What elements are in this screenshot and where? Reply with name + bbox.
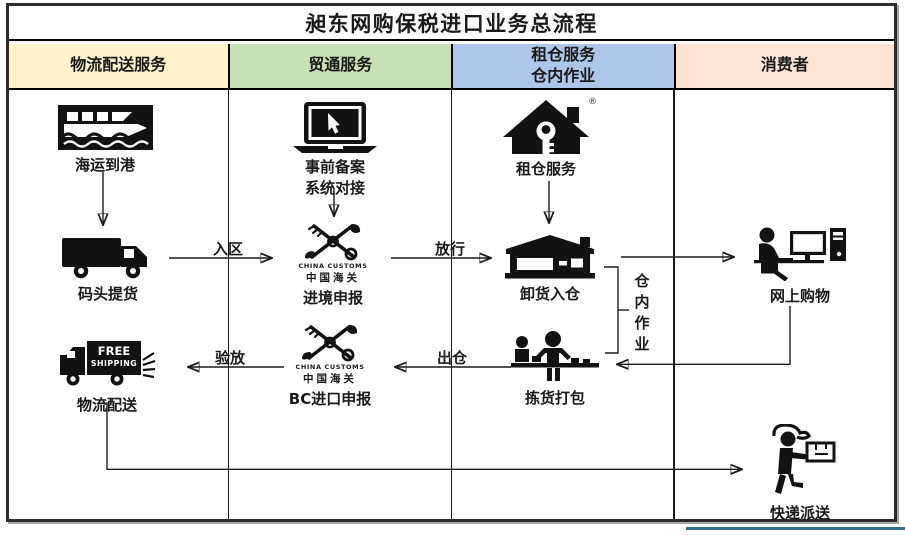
warehouse-ops-note: 仓 内 作 业 (629, 271, 655, 355)
edge-label-out-of-warehouse: 出仓 (420, 347, 484, 368)
edge-label-inspect-release: 验放 (198, 347, 262, 368)
column-header-consumer: 消费者 (674, 44, 895, 91)
node-bc-import-declaration: CHINA CUSTOMS 中国海关 BC进口申报 (263, 322, 397, 409)
node-warehouse-rental: ® 租仓服务 (479, 100, 613, 179)
node-label: 物流配送 (40, 394, 174, 415)
column-header-label: 消费者 (761, 55, 809, 76)
column-divider-3 (673, 90, 675, 519)
column-header-trade: 贸通服务 (228, 44, 452, 91)
warehouse-ops-char: 业 (629, 334, 655, 355)
node-label: 拣货打包 (488, 387, 622, 408)
flowchart-canvas: 昶东网购保税进口业务总流程 物流配送服务 贸通服务 租仓服务 仓内作业 消费者 (0, 0, 905, 535)
node-label: 网上购物 (733, 285, 867, 306)
node-label: 码头提货 (41, 283, 175, 304)
node-label: 卸货入仓 (483, 283, 617, 304)
node-label-line2: 系统对接 (268, 177, 402, 198)
ship-icon (58, 105, 153, 150)
node-label: 海运到港 (38, 154, 172, 175)
diagram-title: 昶东网购保税进口业务总流程 (9, 6, 894, 41)
node-label: 快递派送 (733, 502, 867, 523)
packing-station-icon (511, 330, 599, 383)
column-header-label: 租仓服务 (531, 45, 595, 66)
node-logistics-delivery: FREE SHIPPING 物流配送 (40, 338, 174, 415)
column-divider-2 (451, 90, 453, 519)
node-dock-pickup: 码头提货 (41, 237, 175, 304)
node-entry-declaration: CHINA CUSTOMS 中国海关 进境申报 (266, 221, 400, 308)
warehouse-ops-char: 作 (629, 313, 655, 334)
truck-text-shipping: SHIPPING (91, 359, 137, 368)
column-header-logistics: 物流配送服务 (9, 44, 228, 91)
node-label: BC进口申报 (263, 388, 397, 409)
truck-icon (61, 237, 155, 279)
free-shipping-truck-icon: FREE SHIPPING (58, 338, 156, 390)
customs-logo-text-cn: 中国海关 (263, 371, 397, 386)
edge-label-release: 放行 (418, 238, 482, 259)
accent-underline (686, 527, 905, 530)
column-header-label: 贸通服务 (308, 55, 372, 76)
node-label-line1: 事前备案 (268, 156, 402, 177)
customs-logo-text-en: CHINA CUSTOMS (263, 363, 397, 371)
warehouse-ops-char: 仓 (629, 271, 655, 292)
customs-logo-text-cn: 中国海关 (266, 270, 400, 285)
warehouse-ops-char: 内 (629, 292, 655, 313)
column-header-warehouse: 租仓服务 仓内作业 (451, 44, 674, 91)
node-online-shopping: 网上购物 (733, 227, 867, 306)
node-picking-packing: 拣货打包 (488, 330, 622, 408)
customs-logo-icon (302, 221, 364, 261)
node-sea-arrival: 海运到港 (38, 105, 172, 175)
person-computer-icon (752, 227, 848, 281)
node-label: 租仓服务 (479, 158, 613, 179)
node-unload-into-warehouse: 卸货入仓 (483, 235, 617, 304)
house-key-icon (503, 100, 589, 154)
column-divider-1 (228, 90, 230, 519)
node-express-delivery: 快递派送 (733, 424, 867, 523)
column-header-label2: 仓内作业 (531, 66, 595, 87)
courier-icon (760, 424, 840, 498)
node-pre-filing: 事前备案 系统对接 (268, 102, 402, 198)
warehouse-icon (504, 235, 596, 279)
laptop-icon (292, 102, 378, 154)
customs-logo-icon (299, 322, 361, 362)
truck-text-free: FREE (98, 344, 131, 358)
edge-label-enter-zone: 入区 (196, 238, 260, 259)
node-label: 进境申报 (266, 287, 400, 308)
column-header-label: 物流配送服务 (70, 55, 166, 76)
customs-logo-text-en: CHINA CUSTOMS (266, 262, 400, 270)
registered-trademark: ® (588, 97, 597, 107)
